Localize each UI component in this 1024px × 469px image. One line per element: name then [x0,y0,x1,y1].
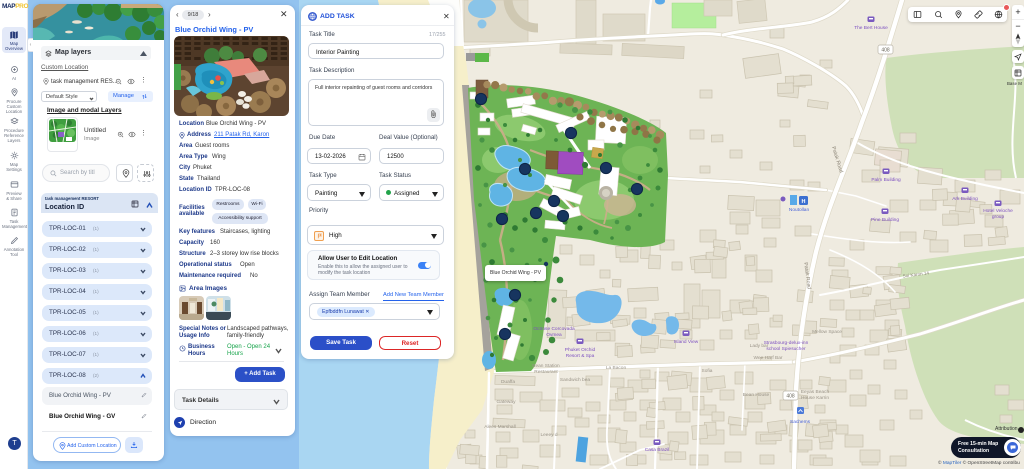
svg-text:Island View: Island View [674,339,699,345]
svg-text:Ark Building: Ark Building [952,196,978,202]
svg-text:Ovmea: Ovmea [546,332,562,338]
svg-text:Sandwich bea: Sandwich bea [560,377,590,383]
svg-text:Phuket Orchid: Phuket Orchid [565,347,596,353]
svg-text:Alees Marshall: Alees Marshall [484,424,515,430]
svg-text:H: H [802,199,806,205]
svg-text:school Spiesucher: school Spiesucher [766,346,806,352]
svg-text:Wee Harf Bar: Wee Harf Bar [754,355,783,361]
svg-text:Sachems: Sachems [790,419,811,425]
svg-text:408: 408 [786,394,795,400]
svg-text:Leeey d: Leeey d [540,432,557,438]
svg-text:Mellow Space: Mellow Space [812,329,842,335]
svg-text:Duaffa: Duaffa [501,379,515,385]
svg-text:group: group [992,214,1005,220]
svg-text:House Karrin: House Karrin [801,395,829,401]
svg-text:Bean Station: Bean Station [532,363,560,369]
svg-text:Casa Brazil: Casa Brazil [645,447,670,453]
svg-text:Hotel Veloche: Hotel Veloche [983,208,1013,214]
svg-text:Strasbourg-delux-inn: Strasbourg-delux-inn [764,340,809,346]
svg-text:Octrose Corcovada: Octrose Corcovada [533,326,575,332]
svg-text:Palm Building: Palm Building [871,177,901,183]
svg-text:Eeyas Beach: Eeyas Beach [801,389,830,395]
svg-text:Noutollan: Noutollan [789,207,810,213]
svg-text:Sofia: Sofia [702,368,713,374]
svg-text:Resort & Spa: Resort & Spa [566,353,595,359]
svg-text:Bean House: Bean House [743,392,770,398]
svg-text:The Bert House: The Bert House [854,25,888,31]
svg-text:Pine Building: Pine Building [871,217,899,223]
svg-text:408: 408 [881,48,890,54]
svg-text:Restaurant: Restaurant [534,369,558,375]
svg-text:La Bacon: La Bacon [606,365,627,371]
svg-text:Gateway: Gateway [497,399,517,405]
